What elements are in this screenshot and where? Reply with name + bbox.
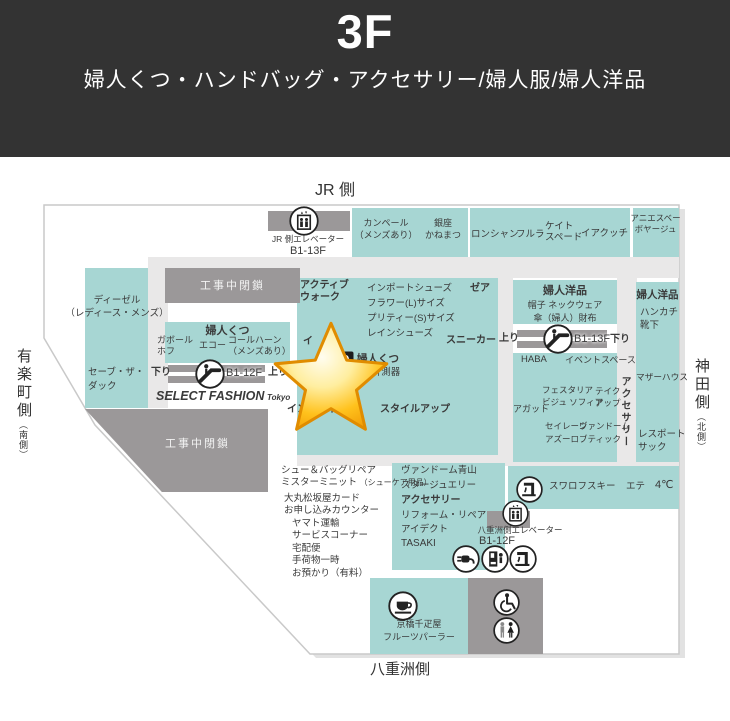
esc13-up-label: 上り <box>499 332 519 345</box>
drinking-fountain-icon <box>509 545 537 573</box>
zone-label-womens-goods-right: 婦人洋品 <box>636 289 679 303</box>
side-label-kanda-main: 神田側 <box>693 358 710 412</box>
shop-lesportsac: レスポート サック <box>638 428 686 455</box>
side-label-yurakucho-main: 有楽町側 <box>15 348 32 420</box>
star-marker <box>270 316 392 438</box>
shop-save-the-duck: セーブ・ザ・ ダック <box>88 366 144 394</box>
side-label-kanda-sub: （北側） <box>696 412 706 452</box>
side-label-kanda: 神田側（北側） <box>691 358 712 452</box>
accessory-aisle-label: アクセサリー <box>617 376 632 448</box>
esc13-down-label: 下り <box>610 333 630 346</box>
wheelchair-icon <box>493 589 520 616</box>
cafe-icon <box>388 591 418 621</box>
shop-mother-house: マザーハウス <box>636 372 688 383</box>
corridor <box>498 278 513 462</box>
shop-vendome-aoyama: ヴァンドーム青山 スタージュエリー <box>401 464 477 493</box>
shop-ecco: エコー <box>199 340 226 352</box>
shop-kate-spade: ケイト スペード <box>545 221 582 244</box>
side-label-yaesu: 八重洲側 <box>370 660 430 680</box>
jr-elevator-floors: B1-13F <box>258 244 358 258</box>
vending-machine-icon <box>481 545 509 573</box>
escalator-icon <box>195 359 225 389</box>
shop-camper: カンペール （メンズあり） <box>354 218 418 241</box>
shop-haba: HABA <box>521 354 547 366</box>
floor-map-page: 3F 婦人くつ・ハンドバッグ・アクセサリー/婦人服/婦人洋品 JR 側 八重洲側… <box>0 0 730 721</box>
category-zea: ゼア <box>470 282 490 295</box>
womens-goods-items: 帽子 ネックウェア 傘（婦人）財布 <box>513 299 617 324</box>
shop-iacucci: イアクッチ <box>581 228 628 240</box>
elevator-icon <box>289 206 319 236</box>
label-event-space: イベントスペース <box>565 355 636 367</box>
shop-festaria: フェスタリア ビジュ ソフィア <box>542 385 603 409</box>
service-yamato: ヤマト運輸 サービスコーナー 宅配便 手荷物一時 お預かり（有料） <box>292 518 368 580</box>
esc12-floors: B1-12F <box>226 366 262 380</box>
esc12-down-label: 下り <box>151 366 171 379</box>
service-daimaru-card: 大丸松坂屋カード お申し込みカウンター <box>284 493 379 518</box>
shop-ginza-kanematsu: 銀座 かねまつ <box>420 218 466 241</box>
category-sneaker: スニーカー <box>446 334 496 347</box>
shop-agete: アガット <box>513 404 549 416</box>
shop-diesel: ディーゼル （レディース・メンズ） <box>61 294 173 321</box>
side-label-yurakucho: 有楽町側（南側） <box>13 348 34 460</box>
shop-longchamp: ロンシャン <box>471 229 519 241</box>
side-label-jr: JR 側 <box>315 181 355 202</box>
service-shoe-bag-repair: シュー＆バッグリペア <box>281 465 376 477</box>
shop-4c: 4℃ <box>655 478 673 492</box>
zone-label-womens-goods: 婦人洋品 <box>513 284 617 298</box>
shop-agnesb: アニエスベー ボヤージュ <box>627 213 684 234</box>
womens-goods-right-items: ハンカチ 靴下 <box>640 306 678 333</box>
restroom-icon <box>493 617 520 644</box>
service-mister-minit-main: ミスターミニット <box>281 477 357 488</box>
shop-swarovski: スワロフスキー <box>549 481 616 493</box>
charging-icon <box>452 545 480 573</box>
closed-label-top: 工事中閉鎖 <box>165 279 300 293</box>
shop-ete: エテ <box>626 481 645 493</box>
shop-tasaki: TASAKI <box>401 537 436 550</box>
category-active-walk: アクティブ ウォーク <box>300 280 349 304</box>
shop-furla: フルラ <box>516 229 545 241</box>
drinking-fountain-icon <box>516 476 543 503</box>
elevator-icon <box>502 500 529 527</box>
shop-gabor-hof: ガボール ホフ <box>157 335 193 357</box>
escalator-icon <box>543 324 573 354</box>
shop-senbikiya: 京橋千疋屋 フルーツパーラー <box>368 618 470 643</box>
side-label-yurakucho-sub: （南側） <box>18 420 28 460</box>
select-fashion-main: SELECT FASHION <box>156 389 264 403</box>
closed-label-bottom: 工事中閉鎖 <box>135 437 260 451</box>
zone-label-accessory: アクセサリー <box>401 494 461 507</box>
esc13-floors: B1-13F <box>574 332 610 346</box>
